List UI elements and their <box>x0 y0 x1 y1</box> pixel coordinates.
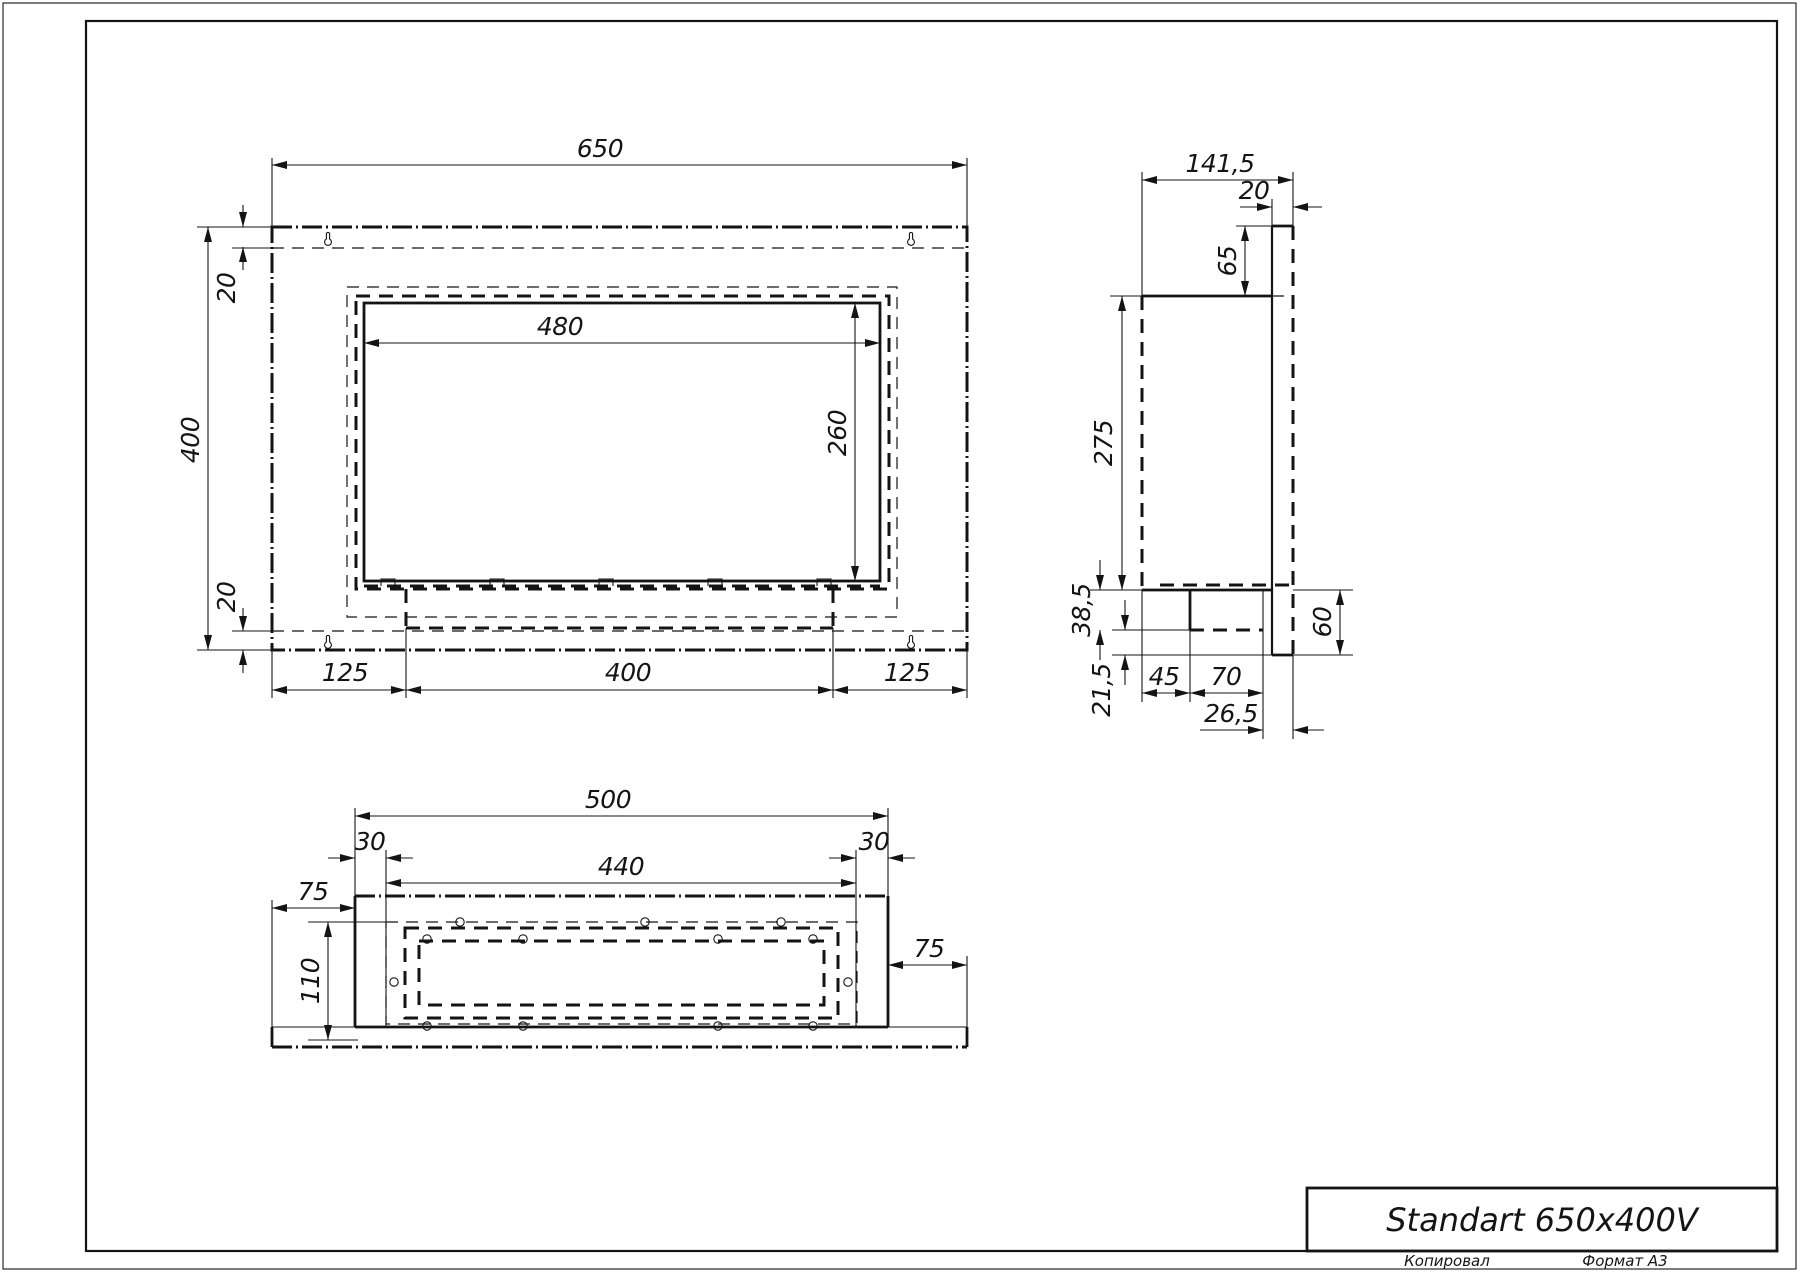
bottom-holes <box>390 918 852 1030</box>
dim-bottom-inset-left: 30 <box>355 827 386 856</box>
dim-front-bottom-left: 125 <box>322 658 368 687</box>
dim-bottom-chamber-width: 440 <box>598 852 644 881</box>
keyhole-slot-top-left <box>325 232 332 245</box>
front-casing-hidden-rect <box>347 287 897 617</box>
front-dimensions: 650 400 20 20 480 260 125 400 125 <box>176 134 967 690</box>
title-block-model: Standart 650x400V <box>1386 1201 1700 1239</box>
dim-side-body-height: 275 <box>1089 420 1118 466</box>
dim-bottom-flange-left: 75 <box>298 877 329 906</box>
dim-front-bottom-center: 400 <box>605 658 651 687</box>
dim-bottom-body-depth: 110 <box>296 958 325 1004</box>
bottom-dimensions: 500 30 440 30 75 75 110 <box>272 785 967 1040</box>
keyhole-slot-bottom-right <box>908 635 915 648</box>
dim-front-opening-height: 260 <box>823 410 852 456</box>
keyhole-slot-top-right <box>908 232 915 245</box>
bottom-chamber-rect <box>386 922 857 1024</box>
dim-side-overall-depth: 141,5 <box>1185 149 1254 178</box>
bottom-burner-inner-rect <box>419 941 824 1005</box>
footer-copied-label: Копировал <box>1404 1252 1490 1270</box>
front-burner-hidden <box>406 589 833 628</box>
dim-front-bottom-right: 125 <box>884 658 930 687</box>
side-burner <box>1190 590 1263 630</box>
drawing-sheet: 650 400 20 20 480 260 125 400 125 <box>0 0 1800 1273</box>
title-block: Standart 650x400V Копировал Формат А3 <box>1307 1188 1777 1270</box>
dim-front-bottom-offset: 20 <box>212 582 241 613</box>
side-flange <box>1272 226 1293 655</box>
drawing-canvas: 650 400 20 20 480 260 125 400 125 <box>0 0 1800 1273</box>
dim-side-burner-inset: 45 <box>1149 662 1180 691</box>
dim-side-burner-depth: 70 <box>1211 662 1242 691</box>
side-dimensions: 141,5 20 65 275 38,5 21,5 45 70 26,5 60 <box>1067 149 1340 730</box>
dim-front-top-offset: 20 <box>212 273 241 304</box>
dim-front-overall-width: 650 <box>577 134 623 163</box>
front-view: 650 400 20 20 480 260 125 400 125 <box>176 134 967 698</box>
dim-bottom-inset-right: 30 <box>859 827 890 856</box>
bottom-body <box>355 896 888 1027</box>
keyhole-slot-bottom-left <box>325 635 332 648</box>
dim-bottom-flange-right: 75 <box>914 934 945 963</box>
dim-side-flange-below: 60 <box>1308 607 1337 638</box>
side-body <box>1142 296 1293 590</box>
dim-front-overall-height: 400 <box>176 417 205 463</box>
dim-front-opening-width: 480 <box>537 312 583 341</box>
bottom-flange-plate <box>272 1027 967 1047</box>
front-opening-rect <box>364 303 880 581</box>
front-box-hidden-rect <box>356 296 889 589</box>
dim-side-burner-height: 38,5 <box>1067 583 1096 637</box>
side-view: 141,5 20 65 275 38,5 21,5 45 70 26,5 60 <box>1067 149 1353 739</box>
inner-border <box>86 21 1777 1251</box>
dim-bottom-body-width: 500 <box>585 785 631 814</box>
dim-side-flange-thickness: 20 <box>1239 176 1270 205</box>
dim-side-burner-offset: 26,5 <box>1204 699 1258 728</box>
footer-format-label: Формат А3 <box>1582 1252 1667 1270</box>
dim-side-flange-above: 65 <box>1213 246 1242 277</box>
dim-side-below-burner: 21,5 <box>1087 663 1116 717</box>
bottom-view: 500 30 440 30 75 75 110 <box>272 785 967 1047</box>
